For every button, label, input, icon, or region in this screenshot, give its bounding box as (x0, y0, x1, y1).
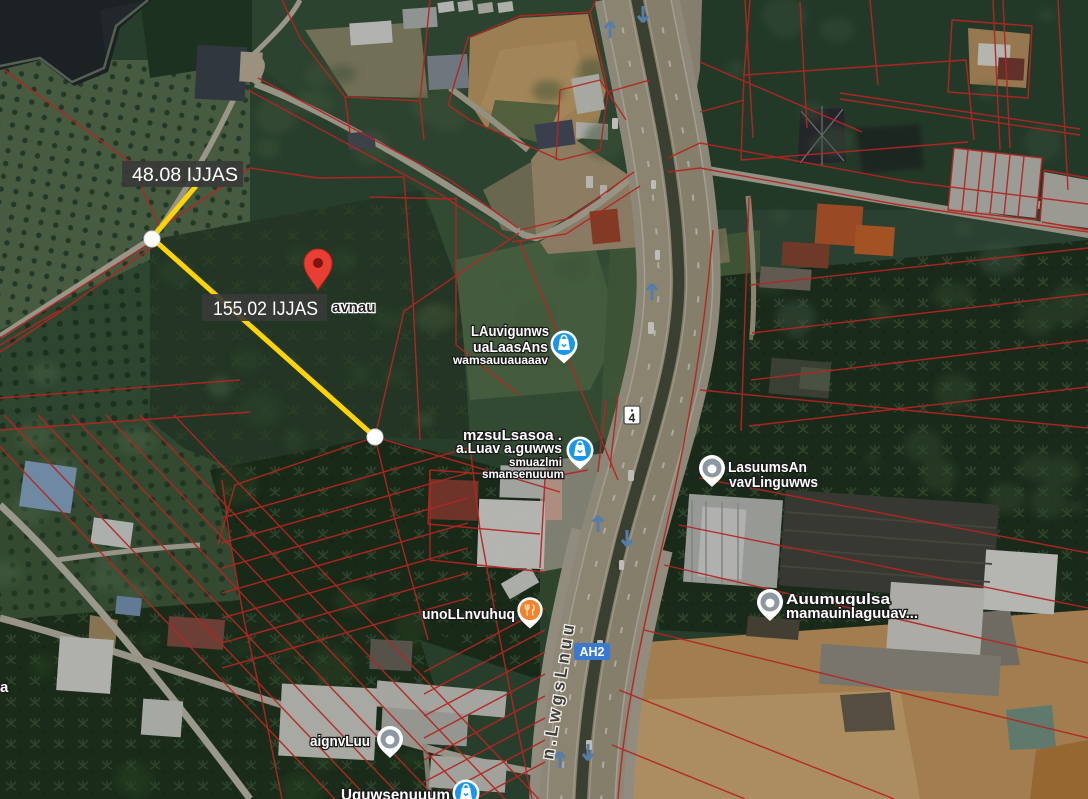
svg-text:155.02 IJJAS: 155.02 IJJAS (213, 299, 318, 320)
svg-text:wamsauuauaaav: wamsauuauaaav (452, 353, 548, 367)
svg-text:a: a (0, 679, 9, 696)
svg-text:vavLinguwws: vavLinguwws (729, 474, 818, 491)
svg-text:smansenuuum: smansenuuum (482, 469, 564, 481)
svg-text:Uquwsenuuum: Uquwsenuuum (341, 787, 450, 799)
svg-text:LAuvigunws: LAuvigunws (471, 323, 549, 340)
svg-text:mamauinlaguuav...: mamauinlaguuav... (786, 605, 918, 622)
svg-text:avnau: avnau (332, 299, 375, 316)
svg-text:smuazlmi: smuazlmi (509, 457, 562, 469)
svg-text:4: 4 (629, 411, 636, 425)
svg-text:a.Luav a.guwws: a.Luav a.guwws (456, 440, 562, 457)
svg-text:aignvLuu: aignvLuu (310, 733, 370, 750)
svg-text:unoLLnvuhuq: unoLLnvuhuq (422, 606, 515, 623)
svg-text:AH2: AH2 (579, 645, 604, 659)
svg-text:48.08 IJJAS: 48.08 IJJAS (132, 165, 238, 186)
